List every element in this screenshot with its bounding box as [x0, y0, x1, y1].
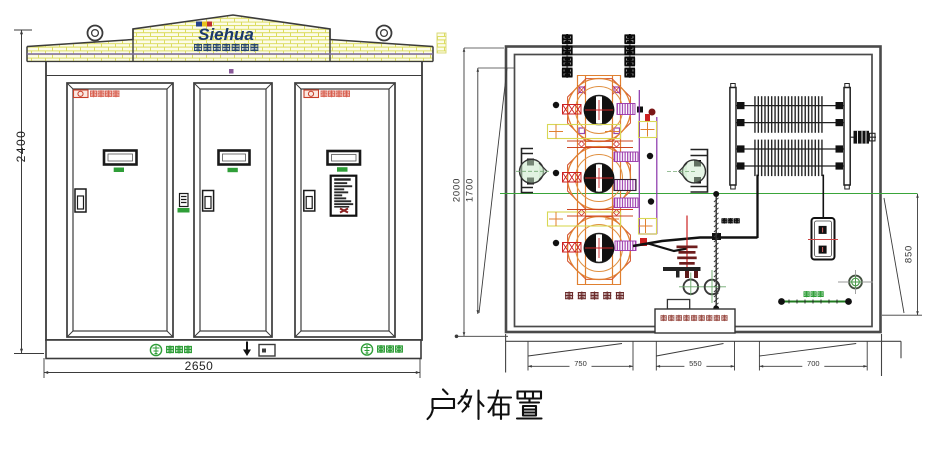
- svg-text:700: 700: [807, 359, 820, 368]
- svg-text:2400: 2400: [14, 130, 28, 163]
- svg-text:2000: 2000: [452, 178, 463, 202]
- svg-text:Siehua: Siehua: [198, 25, 254, 44]
- svg-text:2650: 2650: [185, 359, 214, 373]
- svg-text:750: 750: [574, 359, 587, 368]
- svg-text:850: 850: [904, 245, 915, 263]
- svg-text:1700: 1700: [464, 178, 475, 202]
- svg-text:550: 550: [689, 359, 702, 368]
